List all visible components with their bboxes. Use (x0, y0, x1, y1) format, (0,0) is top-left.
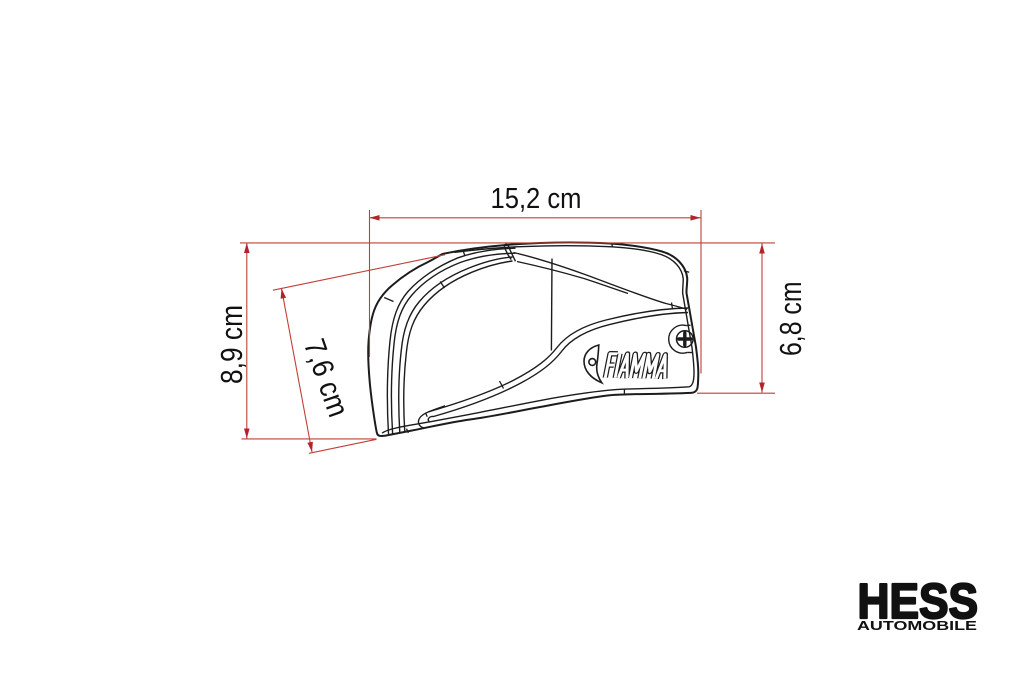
svg-text:15,2 cm: 15,2 cm (491, 183, 582, 215)
svg-text:7,6 cm: 7,6 cm (297, 335, 355, 421)
svg-text:AUTOMOBILE: AUTOMOBILE (857, 618, 977, 633)
svg-text:8,9 cm: 8,9 cm (215, 305, 249, 384)
svg-text:6,8 cm: 6,8 cm (774, 282, 808, 357)
